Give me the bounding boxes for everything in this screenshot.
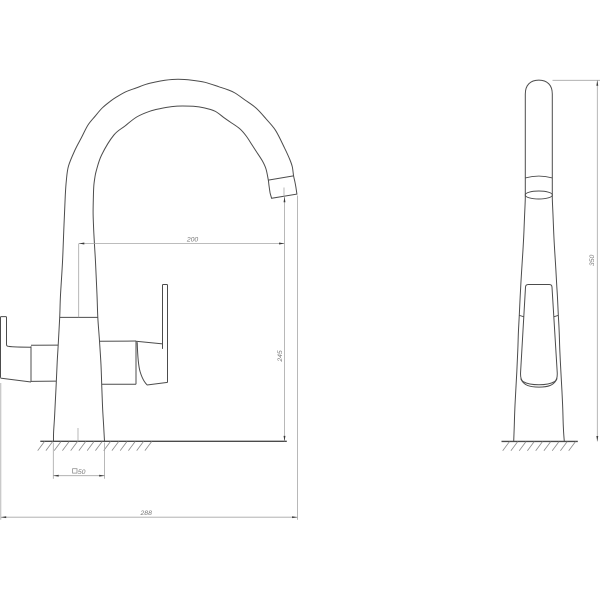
svg-text:245: 245 xyxy=(277,350,284,363)
svg-text:288: 288 xyxy=(140,510,153,517)
svg-text:200: 200 xyxy=(186,236,199,243)
svg-text:50: 50 xyxy=(78,469,86,476)
svg-text:350: 350 xyxy=(589,255,596,267)
